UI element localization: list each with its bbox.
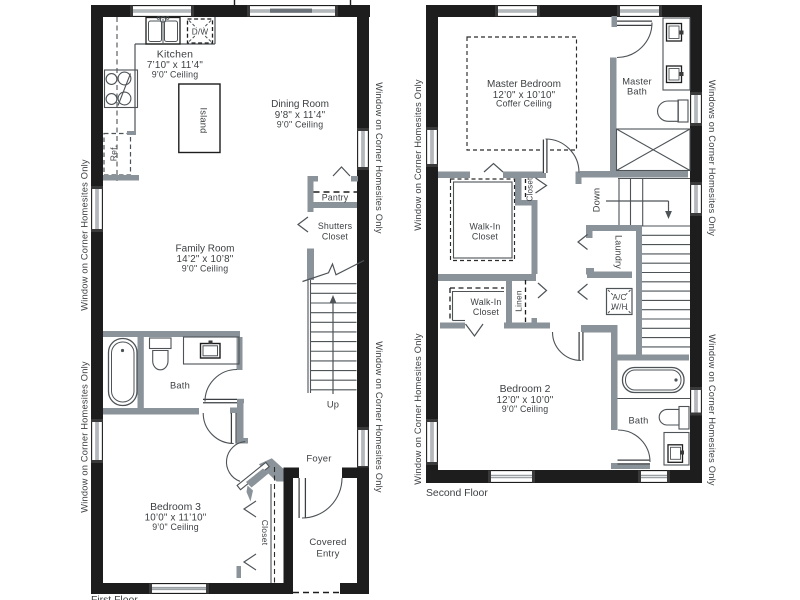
svg-text:First Floor: First Floor [91, 595, 138, 600]
svg-text:Closet: Closet [526, 177, 535, 201]
svg-text:Window on Corner Homesites Onl: Window on Corner Homesites Only [80, 159, 90, 311]
svg-text:Ref.: Ref. [109, 145, 119, 161]
svg-text:Linen: Linen [514, 290, 524, 312]
svg-text:Pantry: Pantry [322, 193, 349, 203]
svg-text:Closet: Closet [472, 232, 498, 242]
svg-text:Island: Island [199, 107, 209, 133]
svg-text:Window on Corner Homesites Onl: Window on Corner Homesites Only [80, 361, 90, 513]
svg-text:Entry: Entry [316, 549, 339, 560]
svg-text:Second Floor: Second Floor [426, 488, 488, 499]
svg-text:Window on Corner Homesites Onl: Window on Corner Homesites Only [413, 333, 423, 485]
svg-text:D/W: D/W [192, 27, 209, 36]
svg-text:Down: Down [592, 188, 602, 213]
svg-text:Windows on Corner Homesites On: Windows on Corner Homesites Only [707, 80, 717, 236]
svg-text:Window on Corner Homesites Onl: Window on Corner Homesites Only [374, 341, 384, 493]
svg-text:Shutters: Shutters [318, 221, 353, 231]
svg-text:9’0" Ceiling: 9’0" Ceiling [182, 264, 229, 274]
svg-text:Family Room: Family Room [176, 244, 235, 255]
svg-text:Bath: Bath [170, 381, 190, 391]
svg-text:W/H: W/H [611, 303, 627, 312]
svg-text:Master: Master [622, 77, 652, 87]
svg-text:Bath: Bath [629, 416, 649, 426]
svg-text:Laundry: Laundry [614, 235, 624, 269]
svg-text:9’0" Ceiling: 9’0" Ceiling [502, 404, 549, 414]
svg-text:9’0" Ceiling: 9’0" Ceiling [152, 70, 199, 80]
svg-text:Up: Up [327, 400, 339, 410]
svg-text:Bedroom 2: Bedroom 2 [500, 384, 551, 395]
svg-text:Walk-In: Walk-In [470, 222, 501, 232]
svg-text:Covered: Covered [309, 537, 346, 548]
svg-text:Master Bedroom: Master Bedroom [487, 79, 561, 90]
svg-text:Kitchen: Kitchen [157, 49, 193, 61]
svg-text:A/C: A/C [613, 293, 627, 302]
svg-text:Closet: Closet [260, 520, 270, 546]
svg-text:Closet: Closet [322, 232, 348, 242]
svg-text:9’0" Ceiling: 9’0" Ceiling [277, 120, 324, 130]
svg-text:Dining Room: Dining Room [271, 99, 329, 110]
svg-text:Window on Corner Homesites Onl: Window on Corner Homesites Only [374, 82, 384, 234]
svg-text:Bedroom 3: Bedroom 3 [150, 502, 201, 513]
svg-text:Walk-In: Walk-In [471, 297, 502, 307]
svg-text:9’0" Ceiling: 9’0" Ceiling [152, 522, 199, 532]
svg-text:Bath: Bath [627, 87, 647, 97]
svg-text:Coffer Ceiling: Coffer Ceiling [496, 99, 552, 109]
svg-text:Closet: Closet [473, 307, 499, 317]
svg-text:Window on Corner Homesites Onl: Window on Corner Homesites Only [413, 79, 423, 231]
svg-text:Window on Corner Homesites Onl: Window on Corner Homesites Only [707, 334, 717, 486]
svg-text:Foyer: Foyer [306, 454, 331, 465]
